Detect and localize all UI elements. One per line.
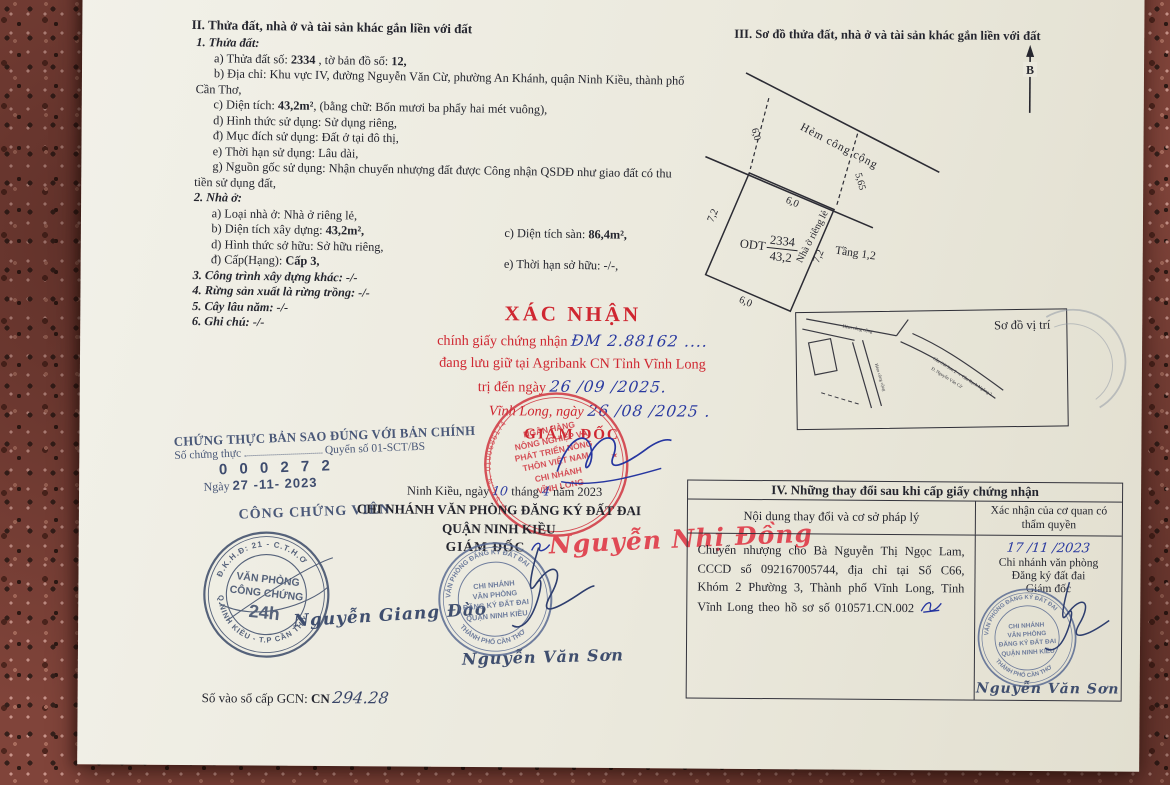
confirm-date-handwritten: 17 /11 /2023	[1006, 541, 1091, 557]
map-sheet-label: , tờ bản đồ số:	[315, 53, 391, 68]
change-content-cell: Chuyển nhượng cho Bà Nguyễn Thị Ngọc Lam…	[687, 534, 976, 700]
floor-area-label: c) Diện tích sàn:	[504, 226, 588, 241]
confirmation-line-1: chính giấy chứng nhận ĐM 2.88162 ....	[400, 331, 745, 352]
table-header-row: Nội dung thay đổi và cơ sở pháp lý Xác n…	[688, 500, 1122, 537]
floor-area-value: 86,4m²,	[588, 227, 627, 242]
notary-24h-round-stamp: Đ.K.H.Đ: 21 - C.T.H.Ơ Q.NINH KIỀU - T.P …	[193, 522, 339, 668]
parcel-dim-right: 7,2	[811, 248, 826, 264]
parcel-diagram: Hẻm công cộng 6,0 5,65 6,0 7,2 7,2 6,0 O…	[688, 61, 970, 323]
certificate-no-handwritten: ĐM 2.88162 ....	[570, 332, 709, 351]
registry-day-handwritten: 10	[492, 483, 509, 498]
alley-width-right: 5,65	[852, 172, 867, 192]
table-col-confirm-header: Xác nhận của cơ quan có thẩm quyền	[976, 502, 1122, 536]
map-sheet-value: 12,	[391, 54, 407, 68]
confirmation-title: XÁC NHẬN	[400, 301, 745, 328]
grade-label: đ) Cấp(Hạng):	[211, 252, 286, 267]
parcel-dim-top: 6,0	[784, 195, 800, 210]
floors-label: Tầng 1,2	[834, 244, 877, 263]
content-initial-mark	[919, 598, 943, 614]
section-2-land-asset: II. Thửa đất, nhà ở và tài sản khác gắn …	[181, 17, 688, 337]
registry-month-label: tháng	[511, 484, 539, 498]
certificate-paper: II. Thửa đất, nhà ở và tài sản khác gắn …	[77, 0, 1145, 772]
built-area-label: b) Diện tích xây dựng:	[211, 221, 325, 237]
area-label: c) Diện tích:	[213, 98, 278, 113]
date-stamped: 27 -11- 2023	[232, 475, 318, 493]
date-label: Ngày	[203, 479, 229, 494]
table-signer-name: Nguyễn Văn Sơn	[975, 681, 1121, 698]
gcn-label: Số vào sổ cấp GCN:	[202, 690, 312, 706]
parcel-type-label: ODT	[739, 236, 766, 253]
table-signer-signature	[1025, 576, 1122, 677]
parcel-no-label: 2334	[769, 233, 796, 250]
table-col-content-header: Nội dung thay đổi và cơ sở pháp lý	[688, 500, 976, 535]
parcel-label-group: ODT 2334 43,2	[738, 229, 799, 265]
parcel-number-label: a) Thửa đất số:	[214, 51, 291, 66]
section-4-changes-table: IV. Những thay đổi sau khi cấp giấy chứn…	[686, 480, 1124, 702]
registry-director-signature	[486, 539, 597, 652]
gcn-value-handwritten: 294.28	[332, 688, 390, 707]
inset-street-label: Đ. Nguyễn Văn Cừ	[930, 366, 963, 389]
faded-stamp	[1012, 307, 1133, 428]
own-term-line: e) Thời hạn sở hữu: -/-,	[475, 257, 684, 276]
cert-number-label: Số chứng thực	[174, 448, 241, 462]
photo-background: II. Thửa đất, nhà ở và tài sản khác gắn …	[0, 0, 1170, 785]
north-label: B	[1026, 63, 1034, 77]
confirm-cell: 17 /11 /2023 Chi nhánh văn phòng Đăng ký…	[975, 536, 1122, 701]
certificate-no-label: chính giấy chứng nhận	[437, 333, 568, 350]
registry-org-line-1: CHI NHÁNH VĂN PHÒNG ĐĂNG KÝ ĐẤT ĐAI	[349, 501, 649, 519]
north-arrow-icon: B	[1016, 43, 1045, 119]
confirmation-line-2: đang lưu giữ tại Agribank CN Tỉnh Vĩnh L…	[400, 355, 745, 374]
registry-signer-name: Nguyễn Văn Sơn	[448, 645, 638, 669]
area-value: 43,2m²	[278, 99, 314, 114]
gcn-cn: CN	[311, 691, 330, 706]
parcel-area-label: 43,2	[769, 249, 792, 265]
built-area-value: 43,2m²,	[326, 223, 365, 238]
inset-alley-label-1: Hẻm công cộng	[842, 325, 873, 335]
parcel-number-value: 2334	[291, 52, 316, 66]
registry-year-label: năm 2023	[553, 485, 602, 499]
parcel-dim-left: 7,2	[706, 207, 721, 223]
table-body-row: Chuyển nhượng cho Bà Nguyễn Thị Ngọc Lam…	[687, 534, 1122, 701]
registry-month-handwritten: 4	[541, 484, 551, 499]
floor-area-line: c) Diện tích sàn: 86,4m²,	[475, 226, 684, 245]
alley-width-left: 6,0	[749, 127, 763, 142]
section-3-title: III. Sơ đồ thửa đất, nhà ở và tài sản kh…	[734, 27, 1040, 44]
alley-label: Hẻm công cộng	[798, 121, 880, 171]
gcn-book-number-line: Số vào sổ cấp GCN: CN 294.28	[202, 687, 390, 707]
area-words: , (bằng chữ: Bốn mươi ba phẩy hai mét vu…	[313, 99, 547, 117]
grade-value: Cấp 3,	[285, 254, 319, 269]
registry-date-pre: Ninh Kiều, ngày	[407, 484, 489, 499]
confirm-line-1: Chi nhánh văn phòng	[976, 556, 1122, 570]
registry-dateline: Ninh Kiều, ngày 10 tháng 4 năm 2023	[349, 482, 649, 500]
